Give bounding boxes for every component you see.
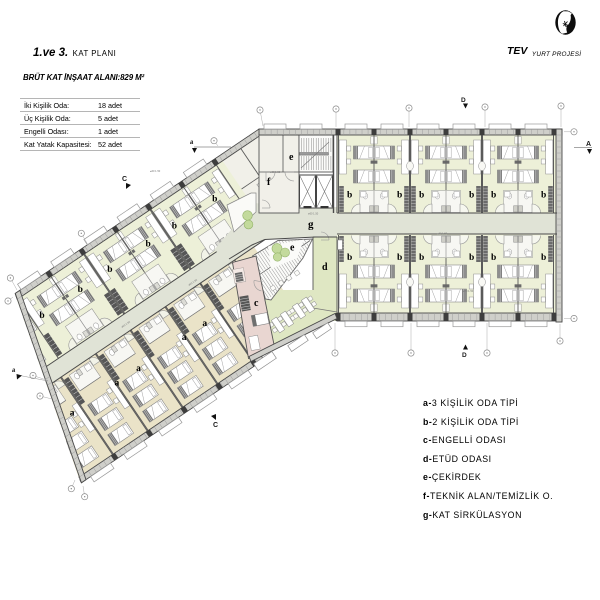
svg-text:g: g (308, 219, 314, 231)
svg-text:b: b (491, 253, 496, 263)
svg-text:a: a (70, 409, 75, 419)
svg-text:e: e (289, 152, 294, 163)
svg-text:a: a (202, 319, 207, 329)
svg-text:C: C (213, 422, 218, 429)
svg-text:b: b (78, 285, 83, 295)
svg-text:b: b (172, 222, 177, 232)
svg-text:D: D (461, 97, 466, 104)
svg-text:b: b (469, 191, 474, 201)
svg-text:b: b (541, 191, 546, 201)
svg-text:a: a (136, 364, 141, 374)
svg-text:e: e (290, 243, 295, 254)
svg-text:b: b (419, 191, 424, 201)
svg-text:d: d (322, 262, 328, 273)
svg-text:●60 1.50: ●60 1.50 (437, 232, 448, 236)
svg-text:a: a (115, 378, 120, 388)
svg-text:b: b (146, 239, 151, 249)
svg-text:●60 1.50: ●60 1.50 (308, 212, 319, 216)
svg-text:b: b (541, 253, 546, 263)
svg-text:b: b (491, 191, 496, 201)
svg-text:b: b (107, 265, 112, 275)
svg-text:C: C (122, 176, 127, 183)
svg-text:b: b (347, 191, 352, 201)
svg-text:b: b (397, 191, 402, 201)
svg-text:a: a (182, 333, 187, 343)
svg-text:b: b (469, 253, 474, 263)
svg-text:A: A (586, 141, 591, 148)
svg-text:b: b (39, 311, 44, 321)
svg-text:b: b (212, 194, 217, 204)
svg-text:●60 1.50: ●60 1.50 (150, 169, 161, 173)
svg-text:b: b (419, 253, 424, 263)
svg-text:D: D (462, 352, 467, 359)
svg-text:b: b (397, 253, 402, 263)
svg-text:b: b (347, 253, 352, 263)
svg-text:●60 1.50: ●60 1.50 (463, 289, 474, 293)
svg-text:c: c (254, 298, 259, 309)
svg-text:●60 1.50: ●60 1.50 (270, 170, 281, 174)
